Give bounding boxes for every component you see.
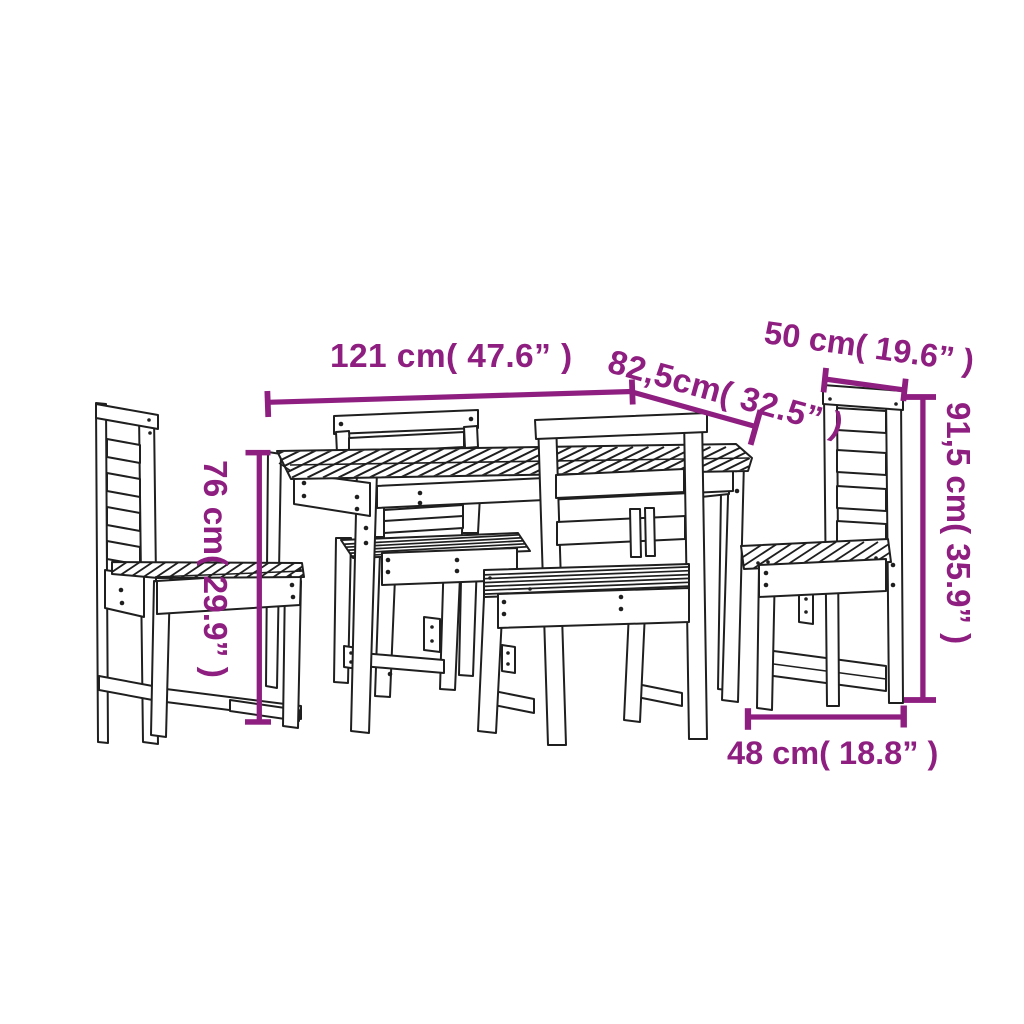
svg-text:121 cm( 47.6” ): 121 cm( 47.6” ) bbox=[330, 338, 573, 375]
svg-text:91,5 cm( 35.9” ): 91,5 cm( 35.9” ) bbox=[940, 402, 977, 644]
svg-text:76 cm( 29.9” ): 76 cm( 29.9” ) bbox=[196, 460, 233, 678]
svg-text:48 cm( 18.8” ): 48 cm( 18.8” ) bbox=[727, 735, 938, 771]
